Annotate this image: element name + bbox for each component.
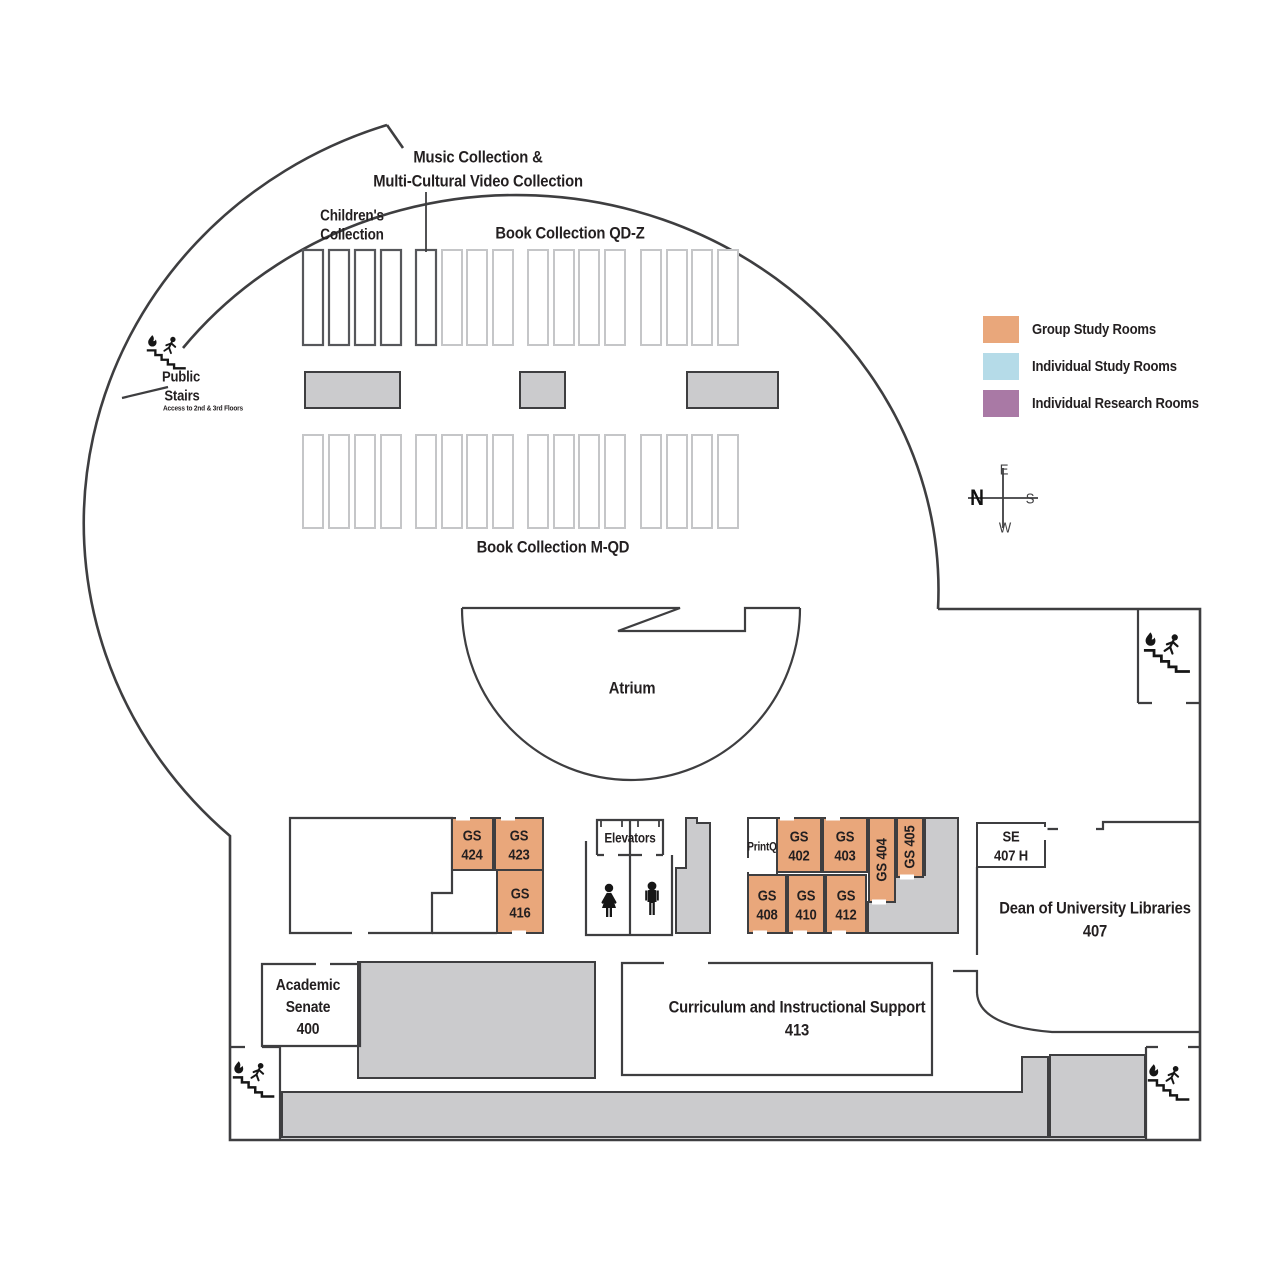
room-gs-403-label-line2: 403 [834,849,855,864]
public-stairs-label-line1: Public [162,370,200,385]
room-gs-402-label-line1: GS [790,830,809,845]
stack-gray-block-3 [687,372,778,408]
curriculum-walls [622,963,932,1075]
library-fourth-floor-plan: Music Collection & Multi-Cultural Video … [0,0,1280,1280]
stairwell-top-right-walls [1138,609,1200,703]
curriculum-support-label-line1: Curriculum and Instructional Support [669,999,926,1016]
book-collection-mqd-label: Book Collection M-QD [477,539,630,556]
workroom-walls [290,818,452,933]
emergency-stairs-icon-bottom-left [233,1061,275,1096]
book-stacks-top-row [303,250,738,345]
book-collection-qdz-label: Book Collection QD-Z [495,225,644,242]
stairs-band-connector-wall [122,387,168,398]
elevator-shaft-gray-area [676,818,710,933]
room-gs-404-label: GS 404 [875,838,890,881]
room-gs-423-label-line2: 423 [508,848,529,863]
room-se-407h-label-line1: SE [1002,830,1019,845]
dean-office-label-line1: Dean of University Libraries [999,900,1191,917]
emergency-stairs-icon-right [1144,632,1190,671]
group-study-swatch [983,316,1019,343]
room-gs-416-label-line2: 416 [509,906,530,921]
academic-senate-label-line1: Academic [276,978,340,994]
dean-suite-top-wall [1045,822,1200,829]
room-gs-410-label-line2: 410 [795,908,816,923]
room-gs-416-label-line1: GS [511,887,530,902]
dean-office-label-line2: 407 [1083,923,1107,940]
floor-plan-drawing [0,0,1280,1280]
stack-gray-block-1 [305,372,400,408]
public-stairs-icon [147,335,186,368]
center-gray-block [358,962,595,1078]
legend-row-group-study: Group Study Rooms [983,316,1224,343]
legend-row-individual-study: Individual Study Rooms [983,353,1224,380]
legend: Group Study Rooms Individual Study Rooms… [983,316,1224,427]
room-gs-412-label-line1: GS [837,889,856,904]
printq-label: PrintQ [747,842,777,854]
legend-label-individual-study: Individual Study Rooms [1032,358,1177,375]
compass-east-label: E [1000,463,1009,478]
room-gs-405-label: GS 405 [903,825,918,868]
mens-restroom-icon [645,882,659,915]
room-gs-424-label-line1: GS [463,829,482,844]
individual-research-swatch [983,390,1019,417]
room-gs-408-label-line2: 408 [756,908,777,923]
atrium-label: Atrium [609,680,656,697]
stairwell-bottom-right-walls [1146,1047,1200,1140]
dean-suite-curved-wall [977,993,1200,1032]
compass-north-label: N [970,487,984,509]
music-collection-label-line2: Multi-Cultural Video Collection [373,173,583,190]
atrium-top-wall [462,608,800,631]
public-stairs-note: Access to 2nd & 3rd Floors [163,404,243,412]
childrens-collection-label-line1: Children's [320,208,384,224]
room-gs-423-label-line1: GS [510,829,529,844]
room-gs-403-label-line1: GS [836,830,855,845]
legend-label-group-study: Group Study Rooms [1032,321,1156,338]
room-gs-412-label-line2: 412 [835,908,856,923]
compass-west-label: W [999,521,1011,536]
room-gs-424-label-line2: 424 [461,848,482,863]
compass-south-label: S [1026,492,1035,507]
bottom-right-gray-block [1050,1055,1145,1137]
academic-senate-label-line3: 400 [297,1022,320,1038]
music-collection-label-line1: Music Collection & [413,149,542,166]
outer-wall-jog [387,125,403,148]
childrens-collection-label-line2: Collection [320,227,383,243]
academic-senate-label-line2: Senate [286,1000,331,1016]
curriculum-support-label-line2: 413 [785,1022,809,1039]
public-stairs-label-line2: Stairs [164,389,199,404]
womens-restroom-icon [602,884,616,917]
emergency-stairs-icon-bottom-right [1148,1064,1190,1099]
room-se-407h-label-line2: 407 H [994,849,1028,864]
room-gs-402-label-line2: 402 [788,849,809,864]
room-gs-410-label-line1: GS [797,889,816,904]
room-gs-408-label-line1: GS [758,889,777,904]
stack-gray-block-2 [520,372,565,408]
book-stacks-bottom-row [303,435,738,528]
legend-row-individual-research: Individual Research Rooms [983,390,1224,417]
elevators-label: Elevators [604,831,655,845]
individual-study-swatch [983,353,1019,380]
legend-label-individual-research: Individual Research Rooms [1032,395,1199,412]
